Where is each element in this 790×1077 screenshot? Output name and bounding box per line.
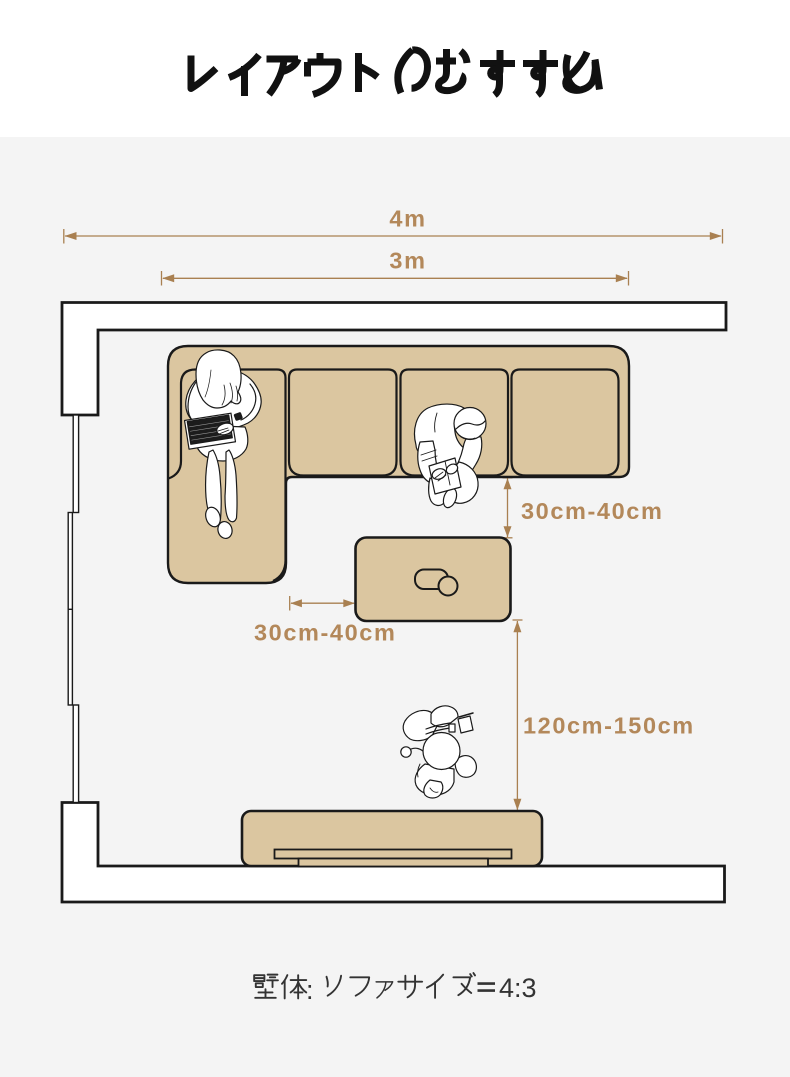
svg-text:30cm-40cm: 30cm-40cm bbox=[521, 498, 663, 524]
svg-text:3m: 3m bbox=[389, 248, 426, 274]
svg-text:120cm-150cm: 120cm-150cm bbox=[523, 713, 695, 739]
svg-text::: : bbox=[306, 975, 314, 1005]
svg-text:4m: 4m bbox=[389, 206, 426, 232]
svg-text:4:3: 4:3 bbox=[499, 973, 537, 1003]
svg-text:30cm-40cm: 30cm-40cm bbox=[254, 620, 396, 646]
